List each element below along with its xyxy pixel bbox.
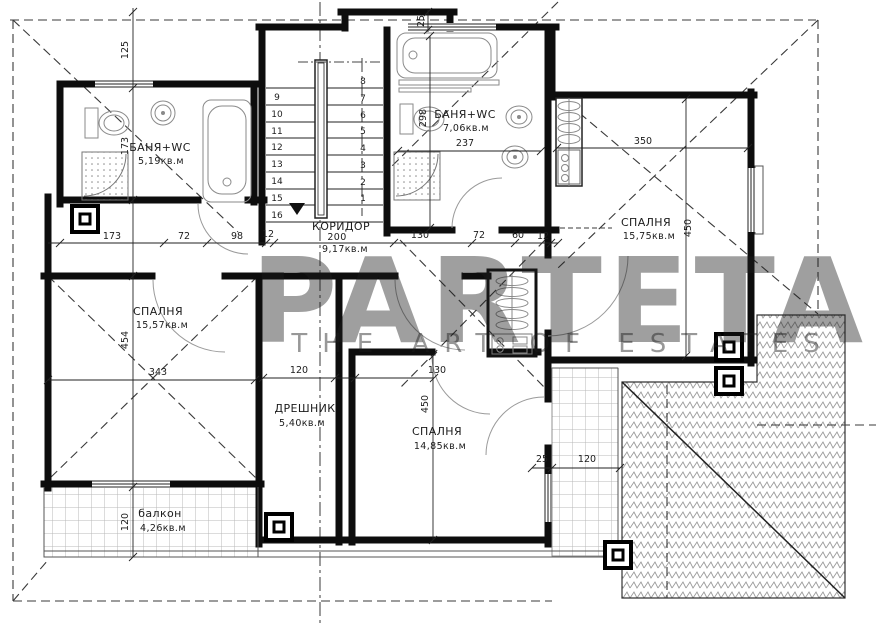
svg-text:72: 72 (178, 231, 190, 242)
shower-icon (394, 152, 440, 200)
svg-text:ДРЕШНИК: ДРЕШНИК (274, 402, 335, 415)
svg-text:15,57кв.м: 15,57кв.м (136, 320, 188, 331)
room-label-bedroom-bottom: СПАЛНЯ 14,85кв.м (412, 425, 466, 452)
bathtub-icon (397, 33, 497, 78)
svg-text:343: 343 (149, 367, 167, 378)
svg-text:25: 25 (536, 454, 548, 465)
svg-text:4,26кв.м: 4,26кв.м (140, 523, 186, 534)
watermark: PARTETA THE ART OF ESTATES (251, 232, 869, 370)
toilet-tank (400, 104, 413, 134)
column (72, 206, 98, 232)
radiator-shaft (556, 98, 582, 186)
svg-text:СПАЛНЯ: СПАЛНЯ (133, 305, 183, 318)
door-bath1 (198, 204, 248, 254)
svg-text:350: 350 (634, 136, 652, 147)
svg-text:25: 25 (416, 15, 427, 27)
svg-text:15: 15 (271, 194, 282, 204)
svg-text:10: 10 (271, 110, 283, 120)
svg-text:9: 9 (274, 93, 280, 103)
room-label-closet: ДРЕШНИК 5,40кв.м (274, 402, 335, 429)
svg-text:98: 98 (231, 231, 243, 242)
svg-text:13: 13 (271, 160, 282, 170)
svg-text:БАНЯ+WC: БАНЯ+WC (434, 108, 496, 121)
svg-text:4: 4 (360, 144, 366, 154)
svg-text:БАНЯ+WC: БАНЯ+WC (129, 141, 191, 154)
svg-text:173: 173 (103, 231, 121, 242)
door-terrace (486, 397, 544, 455)
svg-text:120: 120 (120, 513, 131, 531)
window-bath1-top (95, 80, 153, 88)
column (605, 542, 631, 568)
svg-text:454: 454 (120, 331, 131, 349)
svg-text:237: 237 (456, 138, 474, 149)
room-label-bedroom-left: СПАЛНЯ 15,57кв.м (133, 305, 188, 331)
svg-text:12: 12 (271, 143, 282, 153)
window-bedroom-bottom (544, 474, 552, 522)
svg-text:СПАЛНЯ: СПАЛНЯ (412, 425, 462, 438)
shower-icon (82, 152, 128, 200)
svg-text:11: 11 (271, 127, 282, 137)
svg-text:6: 6 (360, 111, 366, 121)
svg-text:5: 5 (360, 127, 366, 137)
room-label-bath1: БАНЯ+WC 5,19кв.м (129, 141, 191, 167)
window-balcony (92, 480, 170, 488)
toilet-tank (85, 108, 98, 138)
svg-text:14,85кв.м: 14,85кв.м (414, 441, 466, 452)
svg-text:125: 125 (120, 41, 131, 59)
svg-text:1: 1 (360, 194, 366, 204)
door-bath2 (452, 178, 502, 228)
column (716, 368, 742, 394)
svg-text:7: 7 (360, 94, 366, 104)
svg-text:7,06кв.м: 7,06кв.м (443, 123, 489, 134)
svg-text:298: 298 (418, 109, 429, 127)
svg-text:3: 3 (360, 161, 366, 171)
svg-text:120: 120 (578, 454, 596, 465)
floor-plan-canvas: 9 10 11 12 13 14 15 16 8 7 6 5 4 3 2 1 (0, 0, 878, 627)
svg-text:балкон: балкон (138, 507, 182, 520)
svg-text:8: 8 (360, 77, 366, 87)
window-bedroom-right (747, 168, 756, 232)
column (266, 514, 292, 540)
stair-direction-arrow (289, 203, 305, 215)
watermark-tagline: THE ART OF ESTATES (290, 329, 834, 359)
staircase: 9 10 11 12 13 14 15 16 8 7 6 5 4 3 2 1 (266, 60, 383, 222)
svg-text:2: 2 (360, 178, 366, 188)
svg-text:450: 450 (420, 395, 431, 413)
floor-plan-drawing: 9 10 11 12 13 14 15 16 8 7 6 5 4 3 2 1 (0, 0, 878, 627)
stair-stringer (315, 60, 327, 218)
svg-text:СПАЛНЯ: СПАЛНЯ (621, 216, 671, 229)
svg-text:16: 16 (271, 211, 283, 221)
svg-text:14: 14 (271, 177, 283, 187)
svg-text:5,19кв.м: 5,19кв.м (138, 156, 184, 167)
svg-text:5,40кв.м: 5,40кв.м (279, 418, 325, 429)
balcony-tiles (44, 487, 258, 557)
vanity-counter (399, 80, 499, 85)
